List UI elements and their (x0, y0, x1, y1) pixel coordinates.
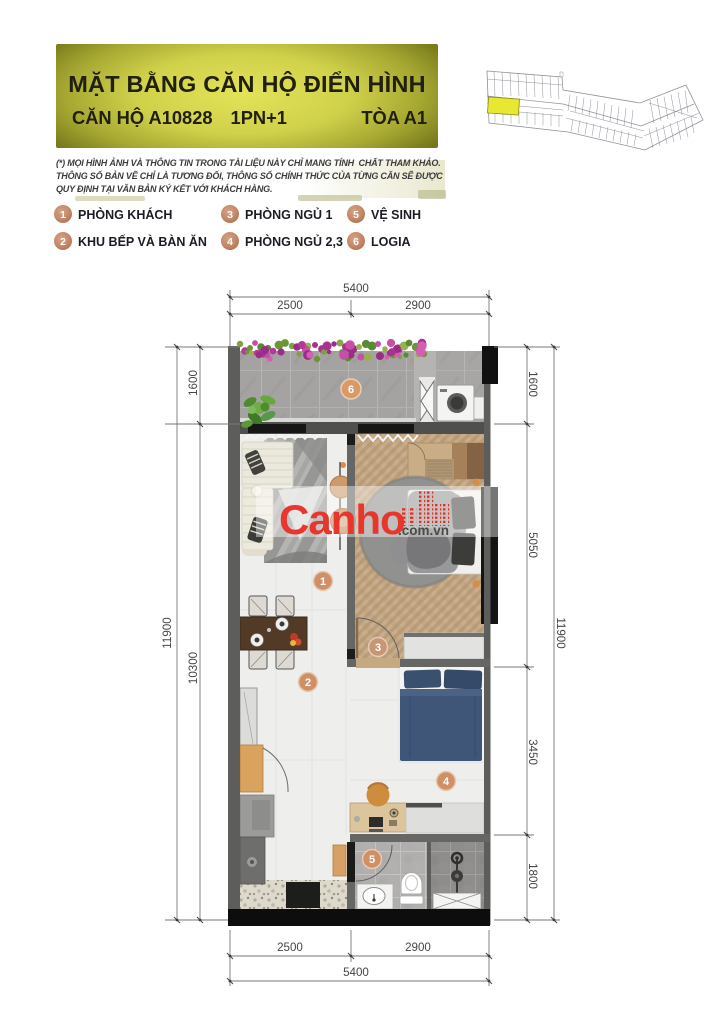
svg-text:11900: 11900 (161, 617, 174, 648)
svg-text:5400: 5400 (343, 282, 369, 295)
svg-text:2: 2 (305, 677, 311, 689)
svg-text:2900: 2900 (405, 941, 431, 954)
svg-text:1800: 1800 (526, 863, 539, 889)
svg-text:3450: 3450 (526, 739, 539, 765)
svg-text:3: 3 (375, 642, 381, 654)
svg-text:Canho: Canho (279, 496, 405, 543)
svg-text:2900: 2900 (405, 299, 431, 312)
svg-text:5: 5 (369, 854, 375, 866)
svg-text:1600: 1600 (526, 371, 539, 397)
svg-text:6: 6 (348, 384, 354, 396)
svg-text:2500: 2500 (277, 941, 303, 954)
svg-text:1: 1 (320, 576, 326, 588)
svg-text:5050: 5050 (526, 532, 539, 558)
svg-text:11900: 11900 (554, 617, 567, 648)
svg-text:5400: 5400 (343, 966, 369, 979)
svg-text:1600: 1600 (187, 370, 200, 396)
svg-text:4: 4 (443, 776, 450, 788)
svg-text:10300: 10300 (187, 652, 200, 684)
svg-text:2500: 2500 (277, 299, 303, 312)
